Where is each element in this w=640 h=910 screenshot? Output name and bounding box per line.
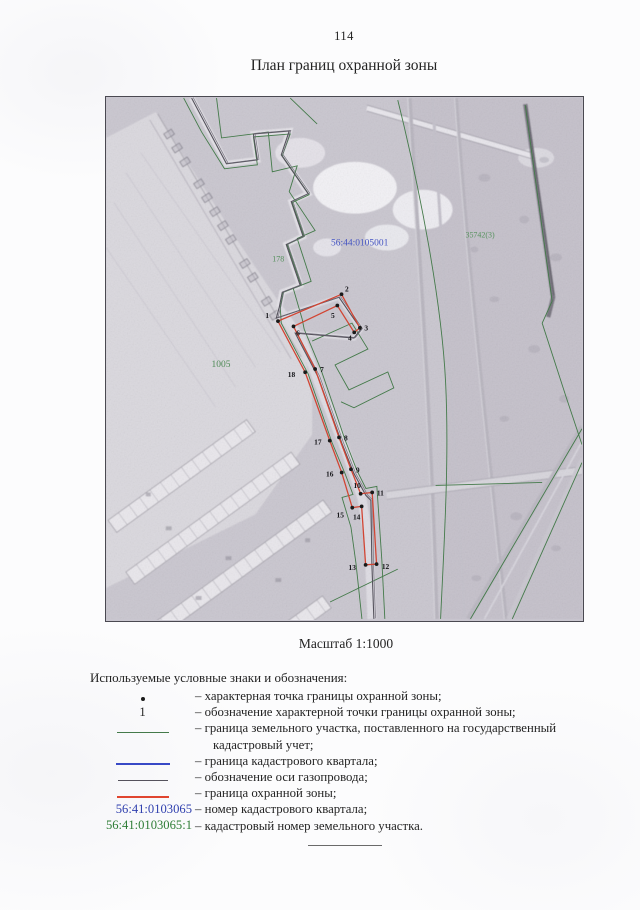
boundary-point-4 (352, 331, 356, 335)
boundary-point-9 (349, 467, 353, 471)
page-title: План границ охранной зоны (251, 57, 437, 75)
boundary-point-label-15: 15 (337, 510, 345, 519)
boundary-point-14 (360, 504, 364, 508)
boundary-point-10 (359, 492, 363, 496)
boundary-point-label-9: 9 (356, 466, 360, 475)
boundary-point-label-5: 5 (331, 311, 335, 320)
boundary-point-3 (358, 326, 362, 330)
map-label-parcel-field: 1005 (212, 360, 231, 370)
scale-label: Масштаб 1:1000 (299, 636, 393, 652)
plan-map-svg: 123456789101112131415161718 56:44:010500… (106, 97, 582, 620)
legend-item-quarter-number: 56:41:0103065 – номер кадастрового кварт… (90, 801, 590, 817)
boundary-point-label-3: 3 (364, 324, 368, 333)
boundary-point-5 (335, 304, 339, 308)
page-number: 114 (334, 29, 354, 44)
boundary-point-label-16: 16 (326, 470, 334, 479)
boundary-point-13 (364, 563, 368, 567)
legend-heading: Используемые условные знаки и обозначени… (90, 670, 590, 686)
legend-item-parcel-number: 56:41:0103065:1 – кадастровый номер земе… (90, 818, 590, 834)
gray-line-symbol (118, 780, 168, 781)
boundary-point-2 (340, 292, 344, 296)
boundary-point-16 (340, 471, 344, 475)
boundary-point-11 (370, 491, 374, 495)
boundary-point-15 (350, 506, 354, 510)
plan-map: 123456789101112131415161718 56:44:010500… (105, 96, 584, 622)
map-label-parcel-right: 35742(3) (465, 231, 495, 240)
map-label-cadastral-quarter: 56:44:0105001 (331, 238, 389, 248)
legend-item-protected-zone: – граница охранной зоны; (90, 785, 590, 801)
boundary-point-label-4: 4 (348, 334, 352, 343)
legend-item-pipeline-axis: – обозначение оси газопровода; (90, 769, 590, 785)
boundary-point-label-8: 8 (344, 434, 348, 443)
boundary-point-17 (328, 439, 332, 443)
legend-item-point-number: 1 – обозначение характерной точки границ… (90, 704, 590, 720)
red-line-symbol (117, 796, 169, 798)
point-dot-symbol (141, 697, 145, 701)
blue-line-symbol (116, 763, 170, 765)
boundary-point-6 (292, 325, 296, 329)
boundary-point-7 (313, 367, 317, 371)
quarter-number-symbol: 56:41:0103065 (90, 801, 195, 817)
boundary-point-8 (337, 435, 341, 439)
point-number-symbol: 1 (139, 704, 145, 720)
boundary-point-label-2: 2 (345, 284, 349, 293)
document-page: 114 План границ охранной зоны (0, 0, 640, 910)
boundary-point-label-14: 14 (353, 512, 361, 521)
green-line-symbol (117, 732, 169, 733)
legend: Используемые условные знаки и обозначени… (90, 670, 590, 834)
boundary-point-18 (303, 370, 307, 374)
photo-grain-overlay (106, 98, 582, 619)
boundary-point-12 (375, 562, 379, 566)
boundary-point-label-11: 11 (377, 488, 384, 497)
boundary-point-label-13: 13 (348, 563, 356, 572)
boundary-point-label-12: 12 (382, 562, 390, 571)
boundary-point-label-6: 6 (296, 329, 300, 338)
legend-item-parcel-boundary: – граница земельного участка, поставленн… (90, 720, 590, 752)
map-label-parcel-corridor: 178 (272, 254, 284, 263)
boundary-point-1 (276, 319, 280, 323)
boundary-point-label-7: 7 (320, 365, 324, 374)
boundary-point-label-17: 17 (314, 438, 322, 447)
boundary-point-label-10: 10 (353, 481, 361, 490)
bottom-divider (308, 845, 382, 846)
legend-item-quarter-boundary: – граница кадастрового квартала; (90, 753, 590, 769)
boundary-point-label-18: 18 (288, 370, 296, 379)
boundary-point-label-1: 1 (265, 311, 269, 320)
parcel-number-symbol: 56:41:0103065:1 (90, 818, 195, 834)
legend-item-point: – характерная точка границы охранной зон… (90, 688, 590, 704)
